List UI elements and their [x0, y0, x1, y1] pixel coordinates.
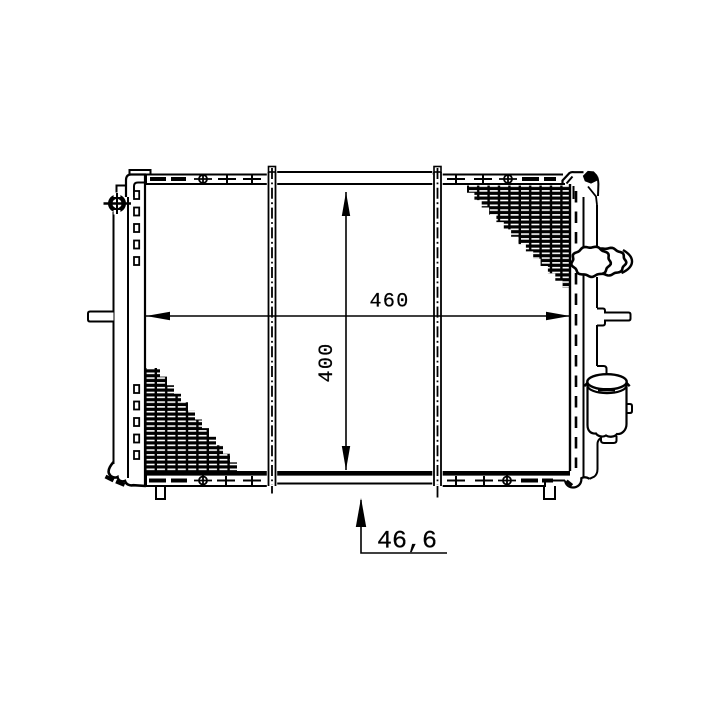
- svg-text:46,6: 46,6: [377, 527, 437, 556]
- svg-text:400: 400: [316, 342, 339, 382]
- svg-text:460: 460: [370, 291, 410, 314]
